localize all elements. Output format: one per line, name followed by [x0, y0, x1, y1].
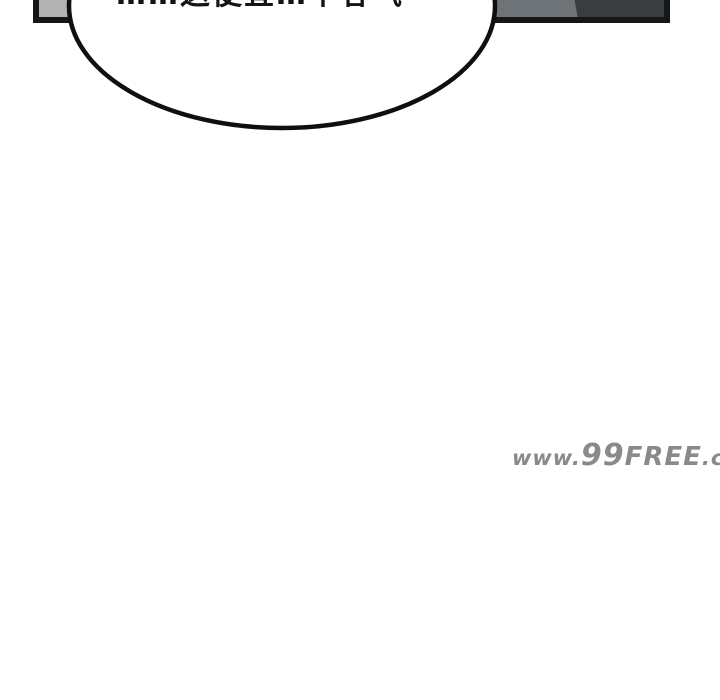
comic-page: ……这便宜…不客气 www. 99 FREE .cc	[0, 0, 720, 700]
watermark-name: FREE	[625, 444, 702, 470]
watermark-suffix: .cc	[702, 448, 720, 469]
watermark-number: 99	[581, 441, 625, 471]
speech-text: ……这便宜…不客气	[116, 0, 404, 10]
comic-panel-art	[0, 0, 720, 700]
watermark-prefix: www.	[512, 448, 581, 469]
speech-bubble	[69, 0, 495, 128]
watermark: www. 99 FREE .cc	[512, 441, 720, 471]
